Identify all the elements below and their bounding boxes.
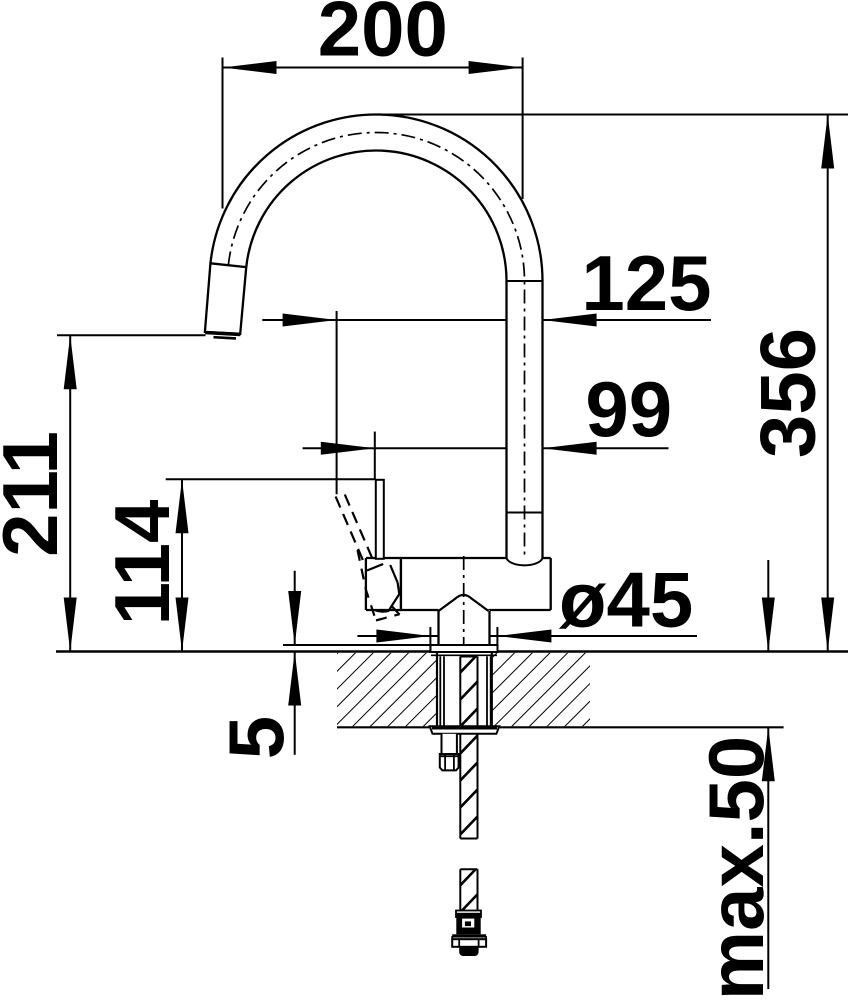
svg-text:200: 200 xyxy=(318,0,448,73)
svg-text:5: 5 xyxy=(212,716,300,759)
svg-text:211: 211 xyxy=(0,431,74,557)
svg-text:114: 114 xyxy=(98,500,186,626)
svg-text:ø45: ø45 xyxy=(559,556,693,644)
svg-text:356: 356 xyxy=(744,328,832,458)
svg-text:125: 125 xyxy=(581,239,711,327)
svg-text:99: 99 xyxy=(585,365,672,453)
